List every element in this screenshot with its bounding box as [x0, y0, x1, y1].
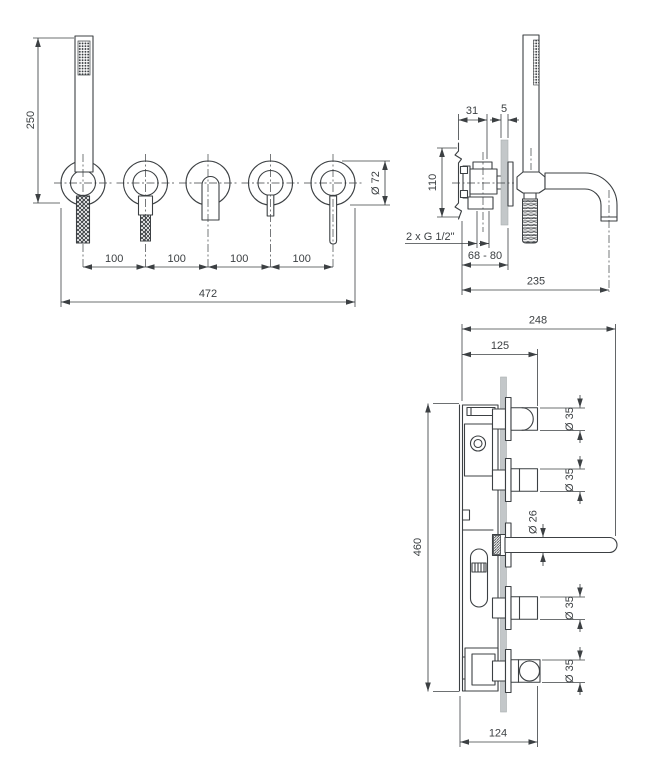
dimension-plate-thickness-5: 5 [490, 103, 519, 138]
hose-holder-d [493, 650, 541, 693]
dim-label-dia26: Ø 26 [528, 510, 540, 534]
dimension-spout-reach-235: 235 [462, 276, 609, 291]
shower-hose-side [523, 199, 538, 243]
dim-label-124: 124 [489, 728, 507, 740]
body-cartridge [471, 549, 488, 607]
dim-label-dia35-d: Ø 35 [564, 659, 576, 683]
shower-holder-hub [517, 172, 545, 193]
callout-connections: 2 x G 1/2" [405, 211, 489, 248]
hand-shower-spray-face [78, 41, 90, 75]
dim-label-5: 5 [501, 103, 507, 115]
technical-drawing-page: 250 100 100 100 100 472 Ø 72 [0, 0, 663, 779]
dim-label-110: 110 [427, 174, 439, 192]
dimension-handle-b-diameter: Ø 35 [540, 456, 585, 504]
wall-plate-side [501, 140, 508, 225]
dimension-rough-in-depth-31: 31 [459, 105, 488, 159]
dim-label-31: 31 [466, 105, 478, 117]
dimension-holder-projection-124: 124 [460, 686, 538, 747]
dim-label-472: 472 [199, 288, 217, 300]
front-view: 250 100 100 100 100 472 Ø 72 [25, 36, 390, 307]
dimension-mounting-depth: 68 - 80 [462, 221, 508, 295]
hand-shower [75, 36, 93, 172]
dim-label-100-2: 100 [168, 253, 186, 265]
dimension-handle-projection-125: 125 [462, 340, 538, 406]
bath-spout [545, 173, 617, 221]
dim-label-dia35-a: Ø 35 [564, 407, 576, 431]
dim-label-248: 248 [529, 315, 547, 327]
handle-a [493, 398, 538, 441]
label-2xg12: 2 x G 1/2" [406, 231, 455, 243]
dim-label-100-4: 100 [293, 253, 311, 265]
handle-c [493, 587, 538, 630]
dim-label-dia-72: Ø 72 [370, 171, 382, 195]
dim-label-250: 250 [25, 111, 37, 129]
side-view: 31 5 110 2 x G 1/2" [405, 35, 617, 295]
dim-label-125: 125 [491, 340, 509, 352]
dimension-handle-a-diameter: Ø 35 [540, 395, 585, 443]
dimension-handle-c-diameter: Ø 35 [540, 584, 585, 632]
hose-connection-port [520, 661, 540, 681]
escutcheon-side [508, 162, 513, 206]
dim-label-100-3: 100 [230, 253, 248, 265]
dim-label-100-1: 100 [105, 253, 123, 265]
dim-label-68-80: 68 - 80 [468, 250, 502, 262]
dimension-holder-diameter: Ø 35 [542, 647, 585, 695]
wall-break-line [455, 143, 462, 219]
spout-section [493, 523, 618, 567]
dim-label-dia35-c: Ø 35 [564, 596, 576, 620]
dim-label-460: 460 [412, 538, 424, 556]
bath-mixer-technical-drawing: 250 100 100 100 100 472 Ø 72 [0, 0, 663, 779]
dimension-rough-in-length-460: 460 [412, 404, 459, 692]
hose-nut [524, 193, 536, 199]
dim-label-235: 235 [527, 276, 545, 288]
dim-label-dia35-b: Ø 35 [564, 468, 576, 492]
handle-b [493, 459, 538, 502]
section-view: 248 125 460 124 Ø 35 [412, 315, 617, 748]
